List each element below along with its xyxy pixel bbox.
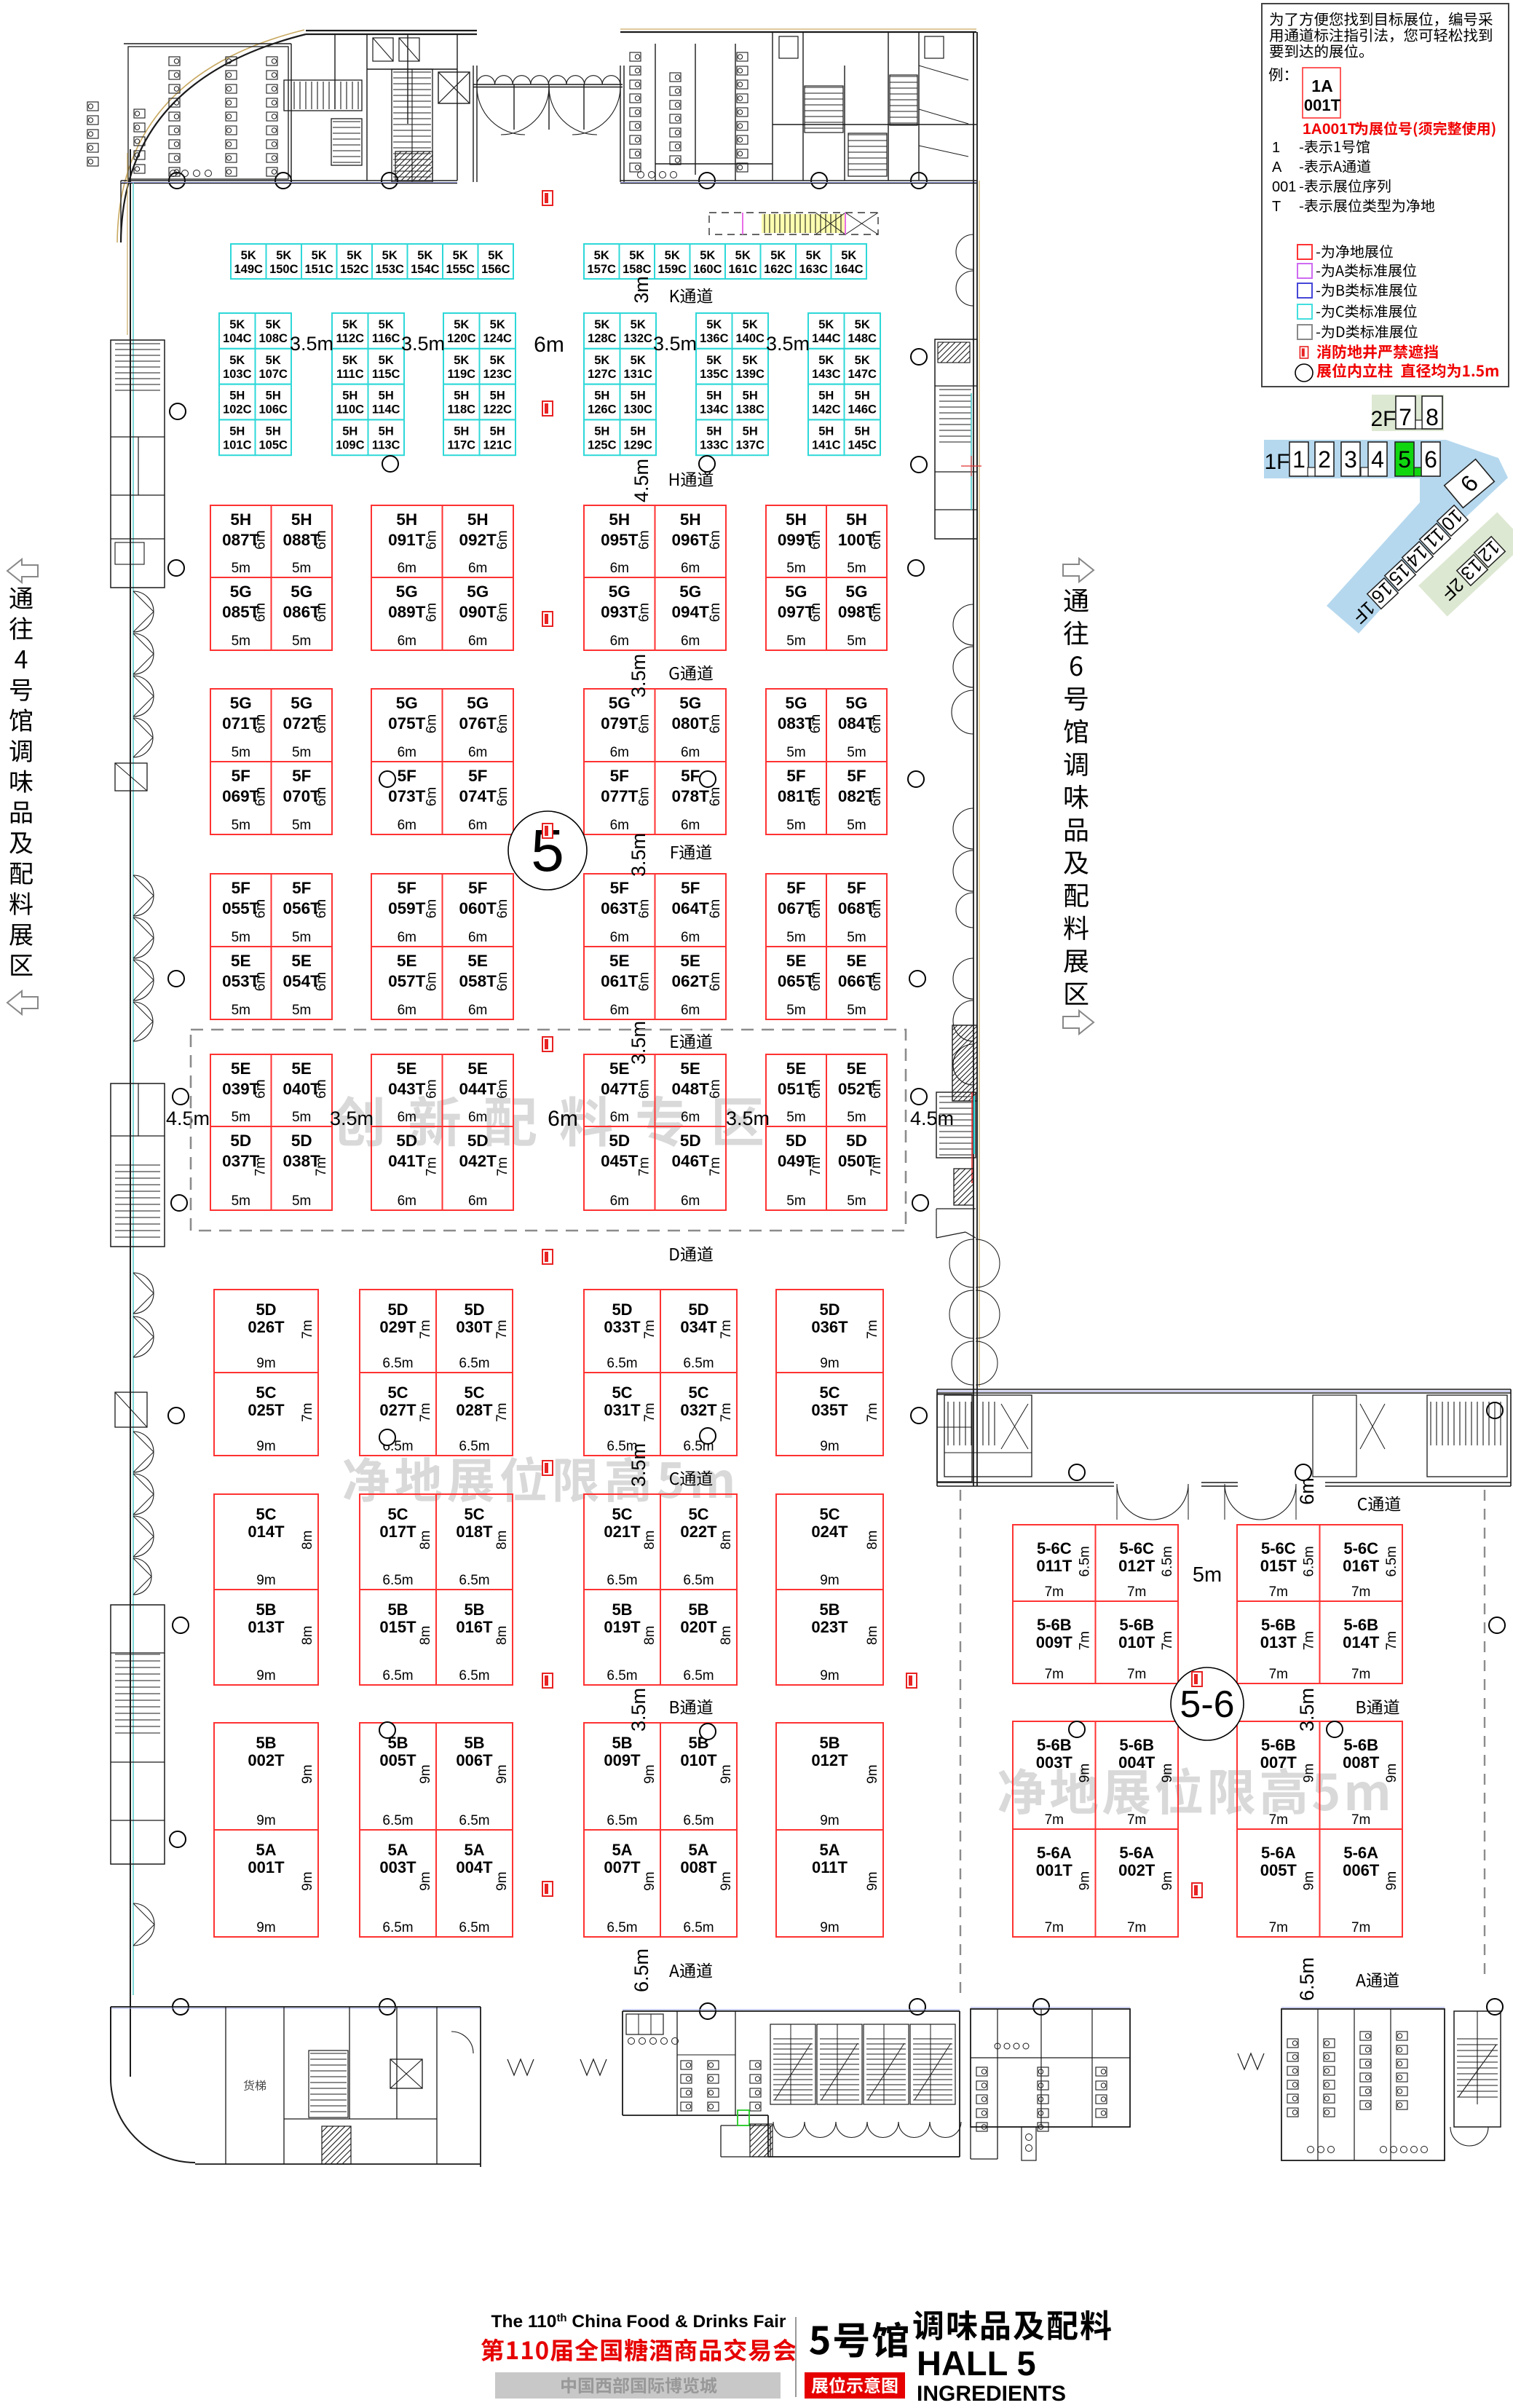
- svg-text:6m: 6m: [681, 561, 700, 576]
- svg-text:9m: 9m: [1302, 1871, 1317, 1890]
- svg-text:5m: 5m: [786, 818, 805, 833]
- svg-text:5K: 5K: [700, 249, 715, 262]
- svg-text:3.5m: 3.5m: [1296, 1688, 1318, 1732]
- svg-text:5E: 5E: [786, 1059, 807, 1078]
- svg-text:016T: 016T: [1343, 1557, 1380, 1575]
- svg-text:003T: 003T: [1036, 1753, 1073, 1772]
- svg-text:013T: 013T: [1260, 1633, 1297, 1651]
- svg-text:030T: 030T: [456, 1318, 493, 1336]
- svg-text:7m: 7m: [1269, 1584, 1288, 1600]
- svg-text:5H: 5H: [818, 425, 834, 438]
- svg-text:7m: 7m: [719, 1402, 734, 1421]
- svg-text:8: 8: [1426, 404, 1439, 430]
- svg-text:5-6: 5-6: [1180, 1683, 1234, 1726]
- svg-text:5D: 5D: [819, 1300, 840, 1319]
- svg-text:1: 1: [1272, 140, 1280, 156]
- svg-text:7m: 7m: [494, 1319, 510, 1338]
- svg-text:5K: 5K: [594, 249, 609, 262]
- svg-text:6m: 6m: [808, 603, 823, 622]
- svg-text:3.5m: 3.5m: [330, 1108, 374, 1129]
- svg-text:6m: 6m: [548, 1107, 578, 1131]
- svg-text:7m: 7m: [300, 1402, 315, 1421]
- svg-text:7m: 7m: [253, 1157, 269, 1176]
- svg-text:6m: 6m: [398, 930, 416, 945]
- svg-text:1A: 1A: [1311, 76, 1332, 95]
- svg-text:027T: 027T: [379, 1401, 416, 1419]
- svg-text:9m: 9m: [1160, 1871, 1175, 1890]
- svg-text:6m: 6m: [681, 1110, 700, 1125]
- svg-text:046T: 046T: [672, 1152, 710, 1170]
- svg-text:6m: 6m: [681, 818, 700, 833]
- svg-text:5m: 5m: [847, 561, 866, 576]
- svg-text:7m: 7m: [1045, 1920, 1064, 1935]
- svg-text:7: 7: [1399, 404, 1412, 430]
- svg-text:6m: 6m: [424, 899, 440, 918]
- svg-text:164C: 164C: [834, 263, 864, 276]
- svg-text:113C: 113C: [372, 438, 400, 451]
- svg-text:007T: 007T: [1260, 1753, 1297, 1772]
- svg-text:011T: 011T: [812, 1858, 848, 1876]
- svg-text:150C: 150C: [269, 263, 299, 276]
- svg-text:8m: 8m: [865, 1531, 880, 1550]
- svg-text:7m: 7m: [1269, 1920, 1288, 1935]
- svg-text:5H: 5H: [706, 390, 722, 403]
- svg-text:121C: 121C: [483, 438, 512, 451]
- svg-text:5H: 5H: [230, 510, 251, 529]
- svg-text:5H: 5H: [396, 510, 417, 529]
- svg-text:6m: 6m: [1296, 1477, 1318, 1505]
- svg-text:013T: 013T: [248, 1618, 285, 1636]
- svg-text:7m: 7m: [642, 1402, 657, 1421]
- svg-text:5F: 5F: [232, 767, 250, 785]
- svg-text:5m: 5m: [786, 745, 805, 760]
- svg-text:6.5m: 6.5m: [1384, 1546, 1399, 1576]
- svg-text:5H: 5H: [490, 425, 505, 438]
- svg-text:9m: 9m: [820, 1573, 839, 1588]
- svg-text:5K: 5K: [488, 249, 503, 262]
- svg-text:5F: 5F: [398, 879, 416, 897]
- svg-text:157C: 157C: [587, 263, 616, 276]
- svg-text:7m: 7m: [1384, 1631, 1399, 1650]
- svg-text:6m: 6m: [468, 930, 487, 945]
- svg-text:6m: 6m: [398, 1110, 416, 1125]
- svg-text:5A: 5A: [688, 1841, 708, 1859]
- svg-text:5E: 5E: [467, 1059, 488, 1078]
- svg-text:128C: 128C: [588, 332, 617, 345]
- svg-text:6m: 6m: [468, 633, 487, 649]
- svg-text:5F: 5F: [786, 879, 805, 897]
- svg-text:5D: 5D: [846, 1132, 867, 1150]
- svg-text:3m: 3m: [631, 276, 652, 304]
- svg-text:5K: 5K: [417, 249, 432, 262]
- svg-text:6m: 6m: [424, 972, 440, 991]
- svg-text:5-6A: 5-6A: [1119, 1844, 1154, 1862]
- svg-text:6.5m: 6.5m: [1302, 1546, 1317, 1576]
- svg-text:6m: 6m: [495, 603, 510, 622]
- svg-text:122C: 122C: [483, 403, 512, 417]
- svg-text:6m: 6m: [314, 899, 329, 918]
- svg-text:9m: 9m: [1078, 1764, 1093, 1783]
- svg-text:064T: 064T: [672, 899, 710, 917]
- svg-text:142C: 142C: [812, 403, 841, 417]
- svg-text:6.5m: 6.5m: [683, 1356, 714, 1371]
- svg-text:7m: 7m: [1302, 1631, 1317, 1650]
- svg-text:9m: 9m: [1160, 1764, 1175, 1783]
- svg-text:5C: 5C: [688, 1383, 708, 1402]
- svg-text:6m: 6m: [468, 561, 487, 576]
- svg-text:7m: 7m: [1078, 1631, 1093, 1650]
- svg-text:1F: 1F: [1264, 450, 1289, 474]
- svg-text:5K: 5K: [743, 354, 758, 367]
- svg-text:5m: 5m: [1193, 1563, 1222, 1587]
- svg-text:9m: 9m: [865, 1764, 880, 1783]
- svg-text:6m: 6m: [398, 1003, 416, 1018]
- svg-text:5K: 5K: [454, 318, 469, 331]
- svg-text:5G: 5G: [785, 583, 807, 601]
- svg-text:5C: 5C: [256, 1505, 276, 1523]
- svg-text:5E: 5E: [397, 1059, 417, 1078]
- svg-text:5m: 5m: [292, 745, 311, 760]
- svg-text:5E: 5E: [231, 952, 251, 970]
- svg-text:019T: 019T: [604, 1618, 641, 1636]
- svg-text:011T: 011T: [1036, 1557, 1072, 1575]
- svg-text:7m: 7m: [1045, 1812, 1064, 1828]
- svg-text:5m: 5m: [847, 1193, 866, 1209]
- svg-text:6.5m: 6.5m: [607, 1668, 637, 1683]
- svg-text:6.5m: 6.5m: [382, 1668, 413, 1683]
- svg-text:010T: 010T: [680, 1751, 717, 1769]
- svg-text:9m: 9m: [820, 1813, 839, 1828]
- svg-text:5m: 5m: [292, 930, 311, 945]
- svg-text:6.5m: 6.5m: [631, 1949, 652, 1992]
- svg-text:5K: 5K: [454, 354, 469, 367]
- svg-text:6m: 6m: [314, 603, 329, 622]
- svg-text:5m: 5m: [786, 1193, 805, 1209]
- svg-text:6m: 6m: [708, 603, 723, 622]
- svg-text:7m: 7m: [1269, 1812, 1288, 1828]
- svg-text:6m: 6m: [808, 714, 823, 733]
- svg-text:5A: 5A: [256, 1841, 276, 1859]
- svg-text:6.5m: 6.5m: [683, 1668, 714, 1683]
- svg-text:8m: 8m: [418, 1531, 433, 1550]
- svg-text:155C: 155C: [446, 263, 475, 276]
- svg-text:6.5m: 6.5m: [459, 1439, 489, 1454]
- svg-text:108C: 108C: [258, 332, 288, 345]
- svg-text:6m: 6m: [708, 714, 723, 733]
- svg-text:The 110th China Food & Drinks: The 110th China Food & Drinks Fair: [491, 2312, 786, 2332]
- svg-text:5D: 5D: [396, 1132, 417, 1150]
- svg-text:5G: 5G: [230, 694, 252, 712]
- svg-text:9m: 9m: [418, 1871, 433, 1890]
- svg-text:5H: 5H: [291, 510, 312, 529]
- svg-text:016T: 016T: [456, 1618, 493, 1636]
- svg-text:3.5m: 3.5m: [290, 333, 333, 355]
- svg-text:7m: 7m: [708, 1157, 723, 1176]
- svg-text:5F: 5F: [468, 767, 487, 785]
- svg-text:5D: 5D: [387, 1300, 408, 1319]
- svg-text:6m: 6m: [495, 1079, 510, 1098]
- svg-text:6m: 6m: [808, 530, 823, 549]
- svg-text:5H: 5H: [743, 425, 758, 438]
- svg-text:095T: 095T: [601, 531, 639, 549]
- svg-text:6m: 6m: [424, 714, 440, 733]
- svg-text:028T: 028T: [456, 1401, 493, 1419]
- svg-text:5D: 5D: [467, 1132, 489, 1150]
- svg-text:163C: 163C: [799, 263, 828, 276]
- svg-text:9m: 9m: [494, 1871, 510, 1890]
- svg-text:5-6C: 5-6C: [1343, 1539, 1378, 1558]
- svg-text:5H: 5H: [631, 390, 646, 403]
- svg-text:7m: 7m: [637, 1157, 652, 1176]
- svg-text:3: 3: [1344, 446, 1357, 473]
- svg-text:6.5m: 6.5m: [459, 1356, 489, 1371]
- svg-text:5-6C: 5-6C: [1261, 1539, 1296, 1558]
- svg-text:5-6A: 5-6A: [1343, 1844, 1378, 1862]
- svg-text:5C: 5C: [819, 1505, 840, 1523]
- svg-text:6m: 6m: [637, 530, 652, 549]
- svg-text:6.5m: 6.5m: [607, 1813, 637, 1828]
- svg-text:5G: 5G: [396, 694, 418, 712]
- svg-text:6m: 6m: [314, 1079, 329, 1098]
- svg-text:5E: 5E: [609, 1059, 630, 1078]
- svg-text:6.5m: 6.5m: [683, 1920, 714, 1935]
- svg-text:5K: 5K: [806, 249, 821, 262]
- svg-text:6.5m: 6.5m: [382, 1573, 413, 1588]
- svg-text:6m: 6m: [424, 1079, 440, 1098]
- svg-text:5D: 5D: [230, 1132, 251, 1150]
- svg-text:9m: 9m: [719, 1871, 734, 1890]
- svg-text:9m: 9m: [418, 1764, 433, 1783]
- svg-text:116C: 116C: [372, 332, 400, 345]
- svg-text:6m: 6m: [468, 1003, 487, 1018]
- svg-text:5-6B: 5-6B: [1119, 1736, 1154, 1754]
- svg-text:5E: 5E: [847, 952, 867, 970]
- svg-text:026T: 026T: [248, 1318, 285, 1336]
- svg-text:6m: 6m: [869, 714, 884, 733]
- svg-text:131C: 131C: [623, 368, 652, 381]
- svg-text:5H: 5H: [379, 425, 394, 438]
- svg-text:061T: 061T: [601, 972, 639, 990]
- svg-text:001T: 001T: [1304, 96, 1341, 114]
- svg-text:5H: 5H: [631, 425, 646, 438]
- svg-text:126C: 126C: [588, 403, 617, 417]
- svg-text:6m: 6m: [398, 745, 416, 760]
- svg-text:5B: 5B: [256, 1600, 276, 1619]
- svg-text:135C: 135C: [700, 368, 729, 381]
- svg-text:9m: 9m: [820, 1668, 839, 1683]
- svg-text:015T: 015T: [1260, 1557, 1297, 1575]
- svg-text:5G: 5G: [679, 694, 701, 712]
- svg-text:133C: 133C: [700, 438, 729, 451]
- svg-text:5K: 5K: [629, 249, 644, 262]
- svg-text:160C: 160C: [693, 263, 722, 276]
- svg-text:5H: 5H: [855, 390, 870, 403]
- svg-text:4.5m: 4.5m: [166, 1108, 210, 1129]
- svg-text:5K: 5K: [266, 354, 281, 367]
- svg-text:6m: 6m: [495, 899, 510, 918]
- svg-text:002T: 002T: [1118, 1861, 1156, 1879]
- svg-text:3.5m: 3.5m: [401, 333, 445, 355]
- svg-text:5-6B: 5-6B: [1261, 1736, 1296, 1754]
- svg-text:6m: 6m: [808, 972, 823, 991]
- svg-text:5F: 5F: [292, 879, 311, 897]
- svg-text:6m: 6m: [637, 1079, 652, 1098]
- svg-text:043T: 043T: [388, 1080, 426, 1098]
- svg-text:5m: 5m: [847, 818, 866, 833]
- svg-text:004T: 004T: [1118, 1753, 1156, 1772]
- svg-text:5C: 5C: [256, 1383, 276, 1402]
- svg-text:5m: 5m: [786, 930, 805, 945]
- svg-text:033T: 033T: [604, 1318, 641, 1336]
- svg-text:8m: 8m: [494, 1626, 510, 1645]
- svg-text:5m: 5m: [847, 1003, 866, 1018]
- svg-text:6m: 6m: [808, 1079, 823, 1098]
- svg-text:023T: 023T: [811, 1618, 848, 1636]
- svg-text:5G: 5G: [679, 583, 701, 601]
- svg-text:5G: 5G: [291, 583, 312, 601]
- svg-text:5B: 5B: [688, 1600, 708, 1619]
- svg-text:7m: 7m: [1351, 1920, 1370, 1935]
- svg-text:112C: 112C: [336, 332, 365, 345]
- svg-text:6m: 6m: [610, 561, 629, 576]
- svg-text:152C: 152C: [340, 263, 369, 276]
- svg-text:5E: 5E: [609, 952, 630, 970]
- svg-text:146C: 146C: [848, 403, 877, 417]
- svg-text:5G: 5G: [845, 694, 867, 712]
- svg-text:7m: 7m: [1269, 1667, 1288, 1682]
- svg-text:5E: 5E: [680, 952, 700, 970]
- svg-text:5m: 5m: [847, 930, 866, 945]
- svg-text:8m: 8m: [719, 1531, 734, 1550]
- svg-text:5H: 5H: [454, 390, 469, 403]
- svg-text:5K: 5K: [735, 249, 751, 262]
- svg-text:096T: 096T: [672, 531, 710, 549]
- svg-text:7m: 7m: [314, 1157, 329, 1176]
- svg-text:6m: 6m: [869, 899, 884, 918]
- svg-text:6m: 6m: [468, 1193, 487, 1209]
- svg-text:5F: 5F: [292, 767, 311, 785]
- svg-text:5H: 5H: [379, 390, 394, 403]
- svg-text:5m: 5m: [292, 1110, 311, 1125]
- svg-text:6m: 6m: [253, 1079, 269, 1098]
- svg-text:6m: 6m: [708, 972, 723, 991]
- svg-text:3.5m: 3.5m: [628, 1443, 649, 1487]
- svg-text:6m: 6m: [398, 818, 416, 833]
- svg-text:5m: 5m: [232, 561, 250, 576]
- svg-text:078T: 078T: [672, 787, 710, 805]
- svg-text:5B: 5B: [819, 1600, 840, 1619]
- svg-text:5K: 5K: [855, 318, 870, 331]
- svg-text:6.5m: 6.5m: [1160, 1546, 1175, 1576]
- svg-text:073T: 073T: [388, 787, 426, 805]
- svg-text:145C: 145C: [848, 438, 877, 451]
- svg-text:6m: 6m: [808, 899, 823, 918]
- svg-text:5F: 5F: [786, 767, 805, 785]
- svg-text:5C: 5C: [819, 1383, 840, 1402]
- svg-text:5G: 5G: [230, 583, 252, 601]
- svg-text:041T: 041T: [388, 1152, 426, 1170]
- svg-text:003T: 003T: [379, 1858, 416, 1876]
- svg-text:5H: 5H: [342, 425, 357, 438]
- svg-text:9m: 9m: [256, 1573, 275, 1588]
- svg-text:6.5m: 6.5m: [1296, 1957, 1318, 2001]
- svg-text:7m: 7m: [1351, 1667, 1370, 1682]
- svg-text:017T: 017T: [379, 1523, 416, 1541]
- svg-text:091T: 091T: [388, 531, 426, 549]
- svg-text:5-6A: 5-6A: [1037, 1844, 1072, 1862]
- svg-text:7m: 7m: [495, 1157, 510, 1176]
- svg-text:5F: 5F: [610, 767, 629, 785]
- svg-text:9m: 9m: [719, 1764, 734, 1783]
- svg-text:5K: 5K: [229, 318, 245, 331]
- svg-text:5K: 5K: [490, 354, 505, 367]
- svg-text:6: 6: [1424, 446, 1437, 473]
- svg-text:6m: 6m: [253, 603, 269, 622]
- svg-text:5H: 5H: [490, 390, 505, 403]
- svg-text:8m: 8m: [719, 1626, 734, 1645]
- svg-text:004T: 004T: [456, 1858, 493, 1876]
- svg-text:6m: 6m: [637, 603, 652, 622]
- svg-text:2F: 2F: [1370, 407, 1396, 431]
- svg-text:045T: 045T: [601, 1152, 639, 1170]
- svg-text:5m: 5m: [292, 818, 311, 833]
- svg-text:115C: 115C: [372, 368, 400, 381]
- svg-text:5B: 5B: [612, 1734, 632, 1752]
- svg-text:021T: 021T: [604, 1523, 641, 1541]
- svg-text:107C: 107C: [258, 368, 288, 381]
- svg-text:3.5m: 3.5m: [628, 654, 649, 698]
- svg-text:6m: 6m: [424, 603, 440, 622]
- svg-text:6.5m: 6.5m: [683, 1813, 714, 1828]
- svg-text:5m: 5m: [786, 1003, 805, 1018]
- svg-text:5F: 5F: [681, 767, 700, 785]
- svg-text:5E: 5E: [397, 952, 417, 970]
- svg-text:5-6B: 5-6B: [1343, 1616, 1378, 1634]
- svg-text:7m: 7m: [1351, 1812, 1370, 1828]
- svg-text:5F: 5F: [610, 879, 629, 897]
- svg-text:5-6B: 5-6B: [1037, 1616, 1072, 1634]
- svg-text:5K: 5K: [855, 354, 870, 367]
- svg-text:5m: 5m: [786, 561, 805, 576]
- svg-text:6m: 6m: [708, 1079, 723, 1098]
- svg-text:7m: 7m: [1127, 1812, 1146, 1828]
- svg-text:7m: 7m: [719, 1319, 734, 1338]
- svg-text:5H: 5H: [609, 510, 630, 529]
- svg-text:5G: 5G: [845, 583, 867, 601]
- svg-text:5B: 5B: [464, 1600, 484, 1619]
- svg-text:5K: 5K: [379, 354, 394, 367]
- svg-text:6.5m: 6.5m: [1078, 1546, 1093, 1576]
- svg-text:5H: 5H: [786, 510, 807, 529]
- svg-text:5B: 5B: [612, 1600, 632, 1619]
- svg-text:161C: 161C: [728, 263, 757, 276]
- svg-text:6m: 6m: [468, 745, 487, 760]
- svg-text:5H: 5H: [229, 390, 245, 403]
- svg-text:5D: 5D: [786, 1132, 807, 1150]
- svg-text:6m: 6m: [398, 633, 416, 649]
- svg-text:024T: 024T: [811, 1523, 848, 1541]
- svg-text:4: 4: [1371, 446, 1384, 473]
- svg-text:5K: 5K: [743, 318, 758, 331]
- svg-text:6m: 6m: [534, 333, 564, 357]
- svg-text:057T: 057T: [388, 972, 426, 990]
- svg-text:6m: 6m: [253, 899, 269, 918]
- svg-text:6m: 6m: [637, 899, 652, 918]
- svg-text:5-6C: 5-6C: [1119, 1539, 1154, 1558]
- svg-text:5K: 5K: [594, 354, 609, 367]
- svg-text:6.5m: 6.5m: [607, 1920, 637, 1935]
- svg-text:6.5m: 6.5m: [382, 1813, 413, 1828]
